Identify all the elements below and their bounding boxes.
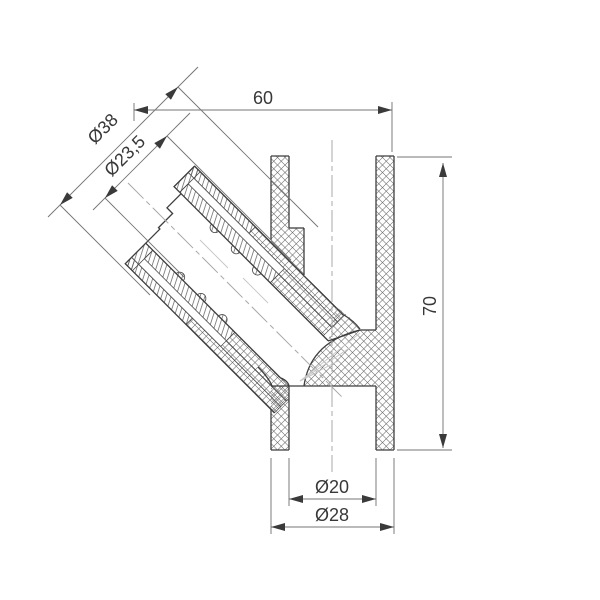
dimension-height-70: 70 (397, 157, 452, 450)
dim-label-height: 70 (420, 296, 440, 316)
fitting-section-drawing: 60 70 Ø38 Ø23,5 (0, 0, 600, 600)
technical-drawing-canvas: 60 70 Ø38 Ø23,5 (0, 0, 600, 600)
arrow-left (289, 495, 303, 503)
dim-label-width: 60 (253, 88, 273, 108)
arrow-left (134, 106, 148, 114)
dimension-width-60: 60 (134, 88, 392, 152)
dim-label-branch-bore: Ø23,5 (100, 131, 149, 180)
arrow-right (378, 106, 392, 114)
arrow-right (380, 523, 394, 531)
body-left-lower-wall (271, 386, 289, 450)
dim-label-bottom-bore: Ø20 (315, 477, 349, 497)
dim-label-branch-outer: Ø38 (84, 110, 122, 148)
arrow-right (362, 495, 376, 503)
arrow-left (271, 523, 285, 531)
arrow-top (439, 163, 447, 177)
dim-label-bottom-outer: Ø28 (315, 505, 349, 525)
arrow-bottom (439, 434, 447, 448)
